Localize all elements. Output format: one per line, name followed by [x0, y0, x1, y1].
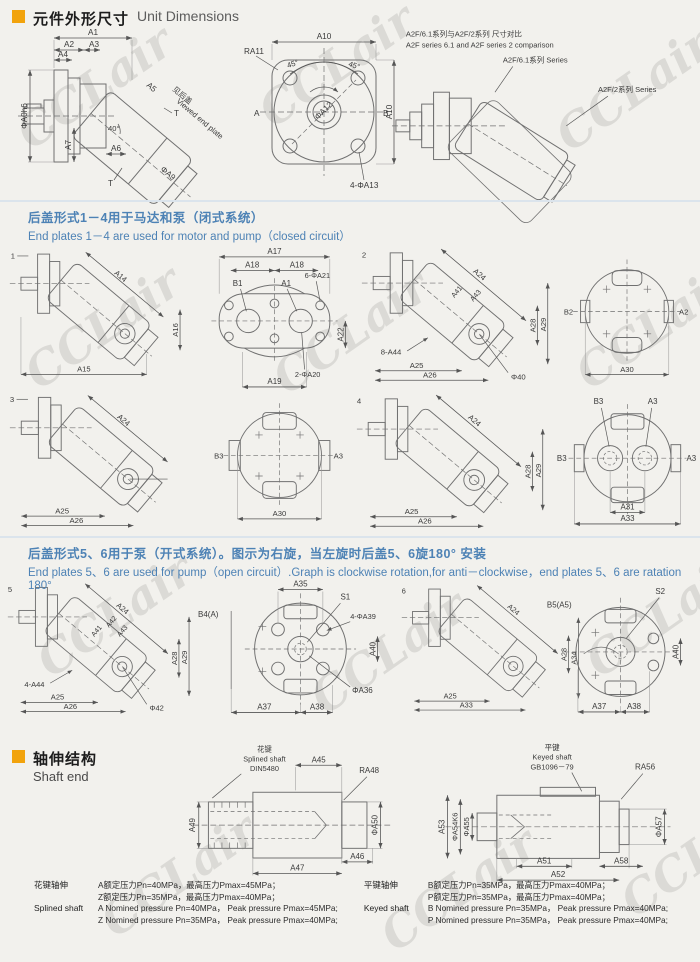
dim-a51-label: A51 — [537, 856, 552, 865]
splined-shaft-drawing: 花键 Splined shaft DIN5480 RA48 A45 A49 ΦA… — [178, 742, 408, 887]
dim-phi-a36-label: ΦA36 — [352, 686, 373, 695]
dim-a25-label: A25 — [410, 361, 424, 370]
spline-spec-line-1: A额定压力Pn=40MPa，最高压力Pmax=45MPa； — [98, 880, 338, 892]
dim-a6-label: A6 — [111, 144, 121, 153]
spline-spec-line-3: A Nomined pressure Pn=40MPa， Peak pressu… — [98, 903, 338, 915]
end-plate-2-side-drawing: 2 A24 A41 A43 A28 A29 8-A44 A25 A26 Φ40 — [360, 242, 560, 392]
pump-silhouette — [402, 589, 555, 706]
dim-a47-label: A47 — [290, 864, 304, 873]
spline-note-zh: 花键 — [257, 745, 272, 754]
pump-silhouette — [362, 253, 523, 376]
end-plate-1-side-drawing: 1 A14 A16 A15 — [8, 242, 193, 392]
dim-a15-label: A15 — [77, 365, 90, 374]
port-b4a-label: B4(A) — [198, 610, 219, 619]
end-plate-4-port-view: B3 A3 B3 A3 A31 A33 — [555, 390, 700, 538]
port-b3-side-label: B3 — [557, 454, 567, 463]
dim-a37-label: A37 — [592, 702, 606, 711]
spline-note-std: DIN5480 — [250, 764, 279, 773]
series-comparison-drawing: A2F/6.1系列与A2F/2系列 尺寸对比 A2F series 6.1 an… — [388, 26, 700, 201]
unit-header-en: Unit Dimensions — [137, 8, 239, 24]
sec14-zh: 后盖形式1－4用于马达和泵（闭式系统） — [28, 207, 700, 226]
dim-a28-label: A28 — [528, 319, 537, 333]
dim-phi-a0h6-label: ΦA0h6 — [20, 103, 29, 129]
keyed-note-en: Keyed shaft — [532, 753, 572, 762]
dim-a30-label: A30 — [620, 365, 634, 374]
comparison-title-zh: A2F/6.1系列与A2F/2系列 尺寸对比 — [406, 29, 523, 39]
end-plate-1-face-view: B1 A1 6-ΦA21 2-ΦA20 A17 A18 A18 A19 A22 — [192, 244, 357, 394]
sec56-zh: 后盖形式5、6用于泵（开式系统）。图示为右旋，当左旋时后盖5、6旋180° 安装 — [28, 543, 700, 562]
dim-a28-label: A28 — [170, 652, 179, 665]
dim-phi-a12-label: ΦA12 — [313, 100, 335, 122]
pump-silhouette — [10, 254, 167, 375]
plate-number-1: 1 — [11, 252, 15, 261]
spline-spec-line-4: Z Nomined pressure Pn=35MPa， Peak pressu… — [98, 915, 338, 927]
dim-a26-label: A26 — [69, 516, 83, 525]
dim-a29-label: A29 — [539, 318, 548, 332]
end-plate-3-side-drawing: 3 A24 A25 A26 — [8, 388, 198, 536]
dim-4-phi-a13-label: 4-ΦA13 — [350, 181, 379, 190]
shaft-header-zh: 轴伸结构 — [33, 748, 97, 769]
pump-silhouette — [357, 399, 518, 522]
end-plate-6-port-view: B5(A5) S2 A40 A37 A38 — [545, 575, 695, 725]
dim-a38-label: A38 — [627, 702, 642, 711]
dim-a43-label: A43 — [469, 288, 483, 303]
keyed-spec-label-en: Keyed shaft — [364, 903, 428, 915]
port-b1-label: B1 — [233, 279, 243, 288]
dim-a3-label: A3 — [89, 40, 99, 49]
dim-a28-label: A28 — [523, 465, 532, 479]
port-a3-label: A3 — [334, 451, 343, 460]
dim-a10-top-label: A10 — [317, 32, 332, 41]
dim-4-phi-a39-label: 4-ΦA39 — [350, 612, 376, 621]
shaft-header-en: Shaft end — [33, 769, 97, 784]
dim-a41-label: A41 — [90, 624, 103, 638]
port-a-label: A — [254, 109, 260, 118]
sec14-en: End plates 1－4 are used for motor and pu… — [28, 228, 700, 244]
shaft-end-header: 轴伸结构 Shaft end — [12, 748, 97, 784]
dim-a25-label: A25 — [444, 691, 457, 700]
port-a2-label: A2 — [679, 307, 688, 316]
dim-a25-label: A25 — [51, 693, 64, 702]
keyed-spec-line-3: B Nomined pressure Pn=35MPa， Peak pressu… — [428, 903, 668, 915]
dim-a42-label: A42 — [105, 615, 118, 629]
series-2-label: A2F/2系列 Series — [598, 84, 657, 94]
dim-a53-label: A53 — [438, 819, 447, 834]
dim-a31-label: A31 — [620, 502, 635, 511]
keyed-note-zh: 平键 — [545, 742, 560, 752]
dim-a17-label: A17 — [267, 247, 282, 256]
splined-shaft-spec: 花键轴伸 Splined shaft A额定压力Pn=40MPa，最高压力Pma… — [34, 880, 338, 926]
dim-a24-label: A24 — [506, 602, 522, 617]
series-61-label: A2F/6.1系列 Series — [503, 54, 568, 64]
dim-a19-label: A19 — [267, 377, 282, 386]
end-plate-2-port-view: B2 A2 A30 — [562, 248, 692, 388]
dim-a24-label: A24 — [115, 412, 132, 428]
dim-a49-label: A49 — [188, 818, 197, 833]
port-b3-label: B3 — [214, 451, 223, 460]
port-a3-side-label: A3 — [686, 454, 696, 463]
port-circle-silhouette — [573, 260, 681, 364]
dim-8-a44-label: 8-A44 — [381, 348, 402, 357]
unit-side-view-drawing: A1 A2 A3 A4 A5 A6 A7 ΦA0h6 40° T T 见后盖 V… — [14, 28, 249, 198]
dim-a5-label: A5 — [145, 81, 159, 95]
dim-a29-label: A29 — [180, 651, 189, 664]
keyed-spec-line-1: B额定压力Pn=35MPa，最高压力Pmax=40MPa； — [428, 880, 668, 892]
dim-a24-label: A24 — [115, 601, 131, 617]
bend-angle-label: 40° — [108, 124, 119, 133]
keyed-shaft-silhouette — [446, 787, 671, 858]
dim-a18-right-label: A18 — [290, 261, 305, 270]
dim-phi-a55-label: ΦA55 — [462, 817, 471, 836]
unit-dimensions-header: 元件外形尺寸 Unit Dimensions — [12, 8, 239, 29]
spline-spec-line-2: Z额定压力Pn=35MPa，最高压力Pmax=40MPa； — [98, 892, 338, 904]
dim-a45-label: A45 — [312, 755, 327, 764]
dim-4-a44-label: 4-A44 — [24, 680, 44, 689]
pump-silhouette — [10, 397, 172, 521]
dim-a4-label: A4 — [58, 50, 68, 59]
pump-silhouette — [8, 587, 165, 707]
dim-phi-a9-label: ΦA9 — [159, 165, 178, 183]
dim-phi-a54k6-label: ΦA54K6 — [450, 813, 459, 841]
dim-a30-label: A30 — [273, 509, 287, 518]
dim-a22-label: A22 — [336, 327, 345, 342]
port-circle-silhouette — [569, 404, 687, 514]
angle-45-right-label: 45° — [347, 59, 361, 71]
dim-a16-label: A16 — [171, 323, 180, 336]
port-a3-top-label: A3 — [648, 397, 658, 406]
end-plates-5-6-section-header: 后盖形式5、6用于泵（开式系统）。图示为右旋，当左旋时后盖5、6旋180° 安装… — [0, 536, 700, 592]
keyed-spec-label-zh: 平键轴伸 — [364, 880, 428, 892]
end-plate-5-port-view: B4(A) A35 S1 4-ΦA39 A40 ΦA36 A37 A38 — [198, 575, 398, 725]
sec56-en: End plates 5、6 are used for pump（open ci… — [28, 564, 700, 592]
dim-2-phi-a20-label: 2-ΦA20 — [295, 370, 321, 379]
end-plate-5-side-drawing: 5 A24 A41 A42 A43 A28 A29 4-A44 A25 A26 … — [6, 575, 201, 725]
thread-t-label-top: T — [174, 109, 179, 118]
unit-flange-view-drawing: 45° 45° A10 RA11 ΦA12 A B A10 4-ΦA13 — [242, 26, 410, 194]
dim-a46-label: A46 — [350, 852, 365, 861]
orange-square-bullet — [12, 750, 25, 763]
port-a1-label: A1 — [281, 279, 291, 288]
port-b2-label: B2 — [564, 307, 573, 316]
dim-ra48-label: RA48 — [359, 766, 379, 775]
thread-t-label-bottom: T — [108, 179, 113, 188]
dim-a7-label: A7 — [64, 140, 73, 150]
plate-number-4: 4 — [357, 397, 362, 406]
plate-number-2: 2 — [362, 251, 366, 260]
end-plates-1-4-section-header: 后盖形式1－4用于马达和泵（闭式系统） End plates 1－4 are u… — [0, 200, 700, 244]
dim-a24-label: A24 — [471, 267, 488, 283]
port-circle-silhouette — [231, 593, 356, 704]
end-plate-3-port-view: B3 A3 A30 — [212, 392, 347, 532]
spline-spec-label-en: Splined shaft — [34, 903, 98, 915]
dim-a24-label: A24 — [466, 413, 483, 429]
spline-shaft-silhouette — [193, 792, 390, 858]
keyed-spec-line-2: P额定压力Pn=35MPa，最高压力Pmax=40MPa； — [428, 892, 668, 904]
dim-a26-label: A26 — [423, 370, 437, 379]
dim-a33-label: A33 — [620, 514, 635, 523]
dim-a25-label: A25 — [55, 506, 69, 515]
dim-a41-label: A41 — [450, 285, 464, 300]
dim-phi40-label: Φ40 — [511, 372, 526, 381]
dim-phi-a50-label: ΦA50 — [371, 814, 380, 835]
plate-silhouette — [211, 278, 337, 363]
dim-a58-label: A58 — [614, 856, 629, 865]
dim-a40-label: A40 — [369, 641, 378, 656]
spline-note-en: Splined shaft — [243, 754, 285, 763]
unit-header-zh: 元件外形尺寸 — [33, 8, 129, 29]
port-circle-silhouette — [224, 403, 336, 508]
port-circle-silhouette — [564, 598, 676, 706]
view-end-plate-en: Viewed end plate — [175, 97, 225, 141]
dim-6-phi-a21-label: 6-ΦA21 — [305, 271, 331, 280]
dim-a52-label: A52 — [551, 870, 566, 879]
dim-s1-label: S1 — [340, 592, 350, 601]
dim-a2-label: A2 — [64, 40, 74, 49]
dim-phi-a57-label: ΦA57 — [655, 816, 664, 837]
dim-ra56-label: RA56 — [635, 763, 656, 772]
port-b5a5-label: B5(A5) — [547, 600, 572, 609]
keyed-spec-line-4: P Nomined pressure Pn=35MPa， Peak pressu… — [428, 915, 668, 927]
dim-a33-label: A33 — [460, 700, 473, 709]
dim-a29-label: A29 — [534, 464, 543, 478]
comparison-title-en: A2F series 6.1 and A2F series 2 comparis… — [406, 41, 554, 50]
dim-a25-label: A25 — [405, 507, 419, 516]
dim-a14-label: A14 — [113, 268, 129, 284]
keyed-shaft-drawing: 平键 Keyed shaft GB1096－79 RA56 A53 ΦA54K6… — [432, 740, 687, 888]
dim-ra11-label: RA11 — [244, 47, 264, 56]
orange-square-bullet — [12, 10, 25, 23]
spline-spec-label-zh: 花键轴伸 — [34, 880, 98, 892]
dim-a43-label: A43 — [116, 624, 129, 638]
dim-a18-left-label: A18 — [245, 261, 260, 270]
end-plate-4-side-drawing: 4 A24 A28 A29 A25 A26 — [355, 388, 555, 538]
port-b3-top-label: B3 — [594, 397, 604, 406]
dim-a38-label: A38 — [310, 703, 325, 712]
dim-a26-label: A26 — [64, 702, 77, 711]
dim-a26-label: A26 — [418, 516, 432, 525]
dim-a1-label: A1 — [88, 28, 98, 37]
keyed-shaft-spec: 平键轴伸 Keyed shaft B额定压力Pn=35MPa，最高压力Pmax=… — [364, 880, 668, 926]
keyed-note-std: GB1096－79 — [530, 763, 573, 772]
plate-number-3: 3 — [10, 395, 14, 404]
dim-a40-label: A40 — [672, 644, 681, 659]
pressure-specs: 花键轴伸 Splined shaft A额定压力Pn=40MPa，最高压力Pma… — [34, 880, 694, 926]
dim-a37-label: A37 — [257, 703, 272, 712]
dim-phi42-label: Φ42 — [149, 704, 163, 713]
